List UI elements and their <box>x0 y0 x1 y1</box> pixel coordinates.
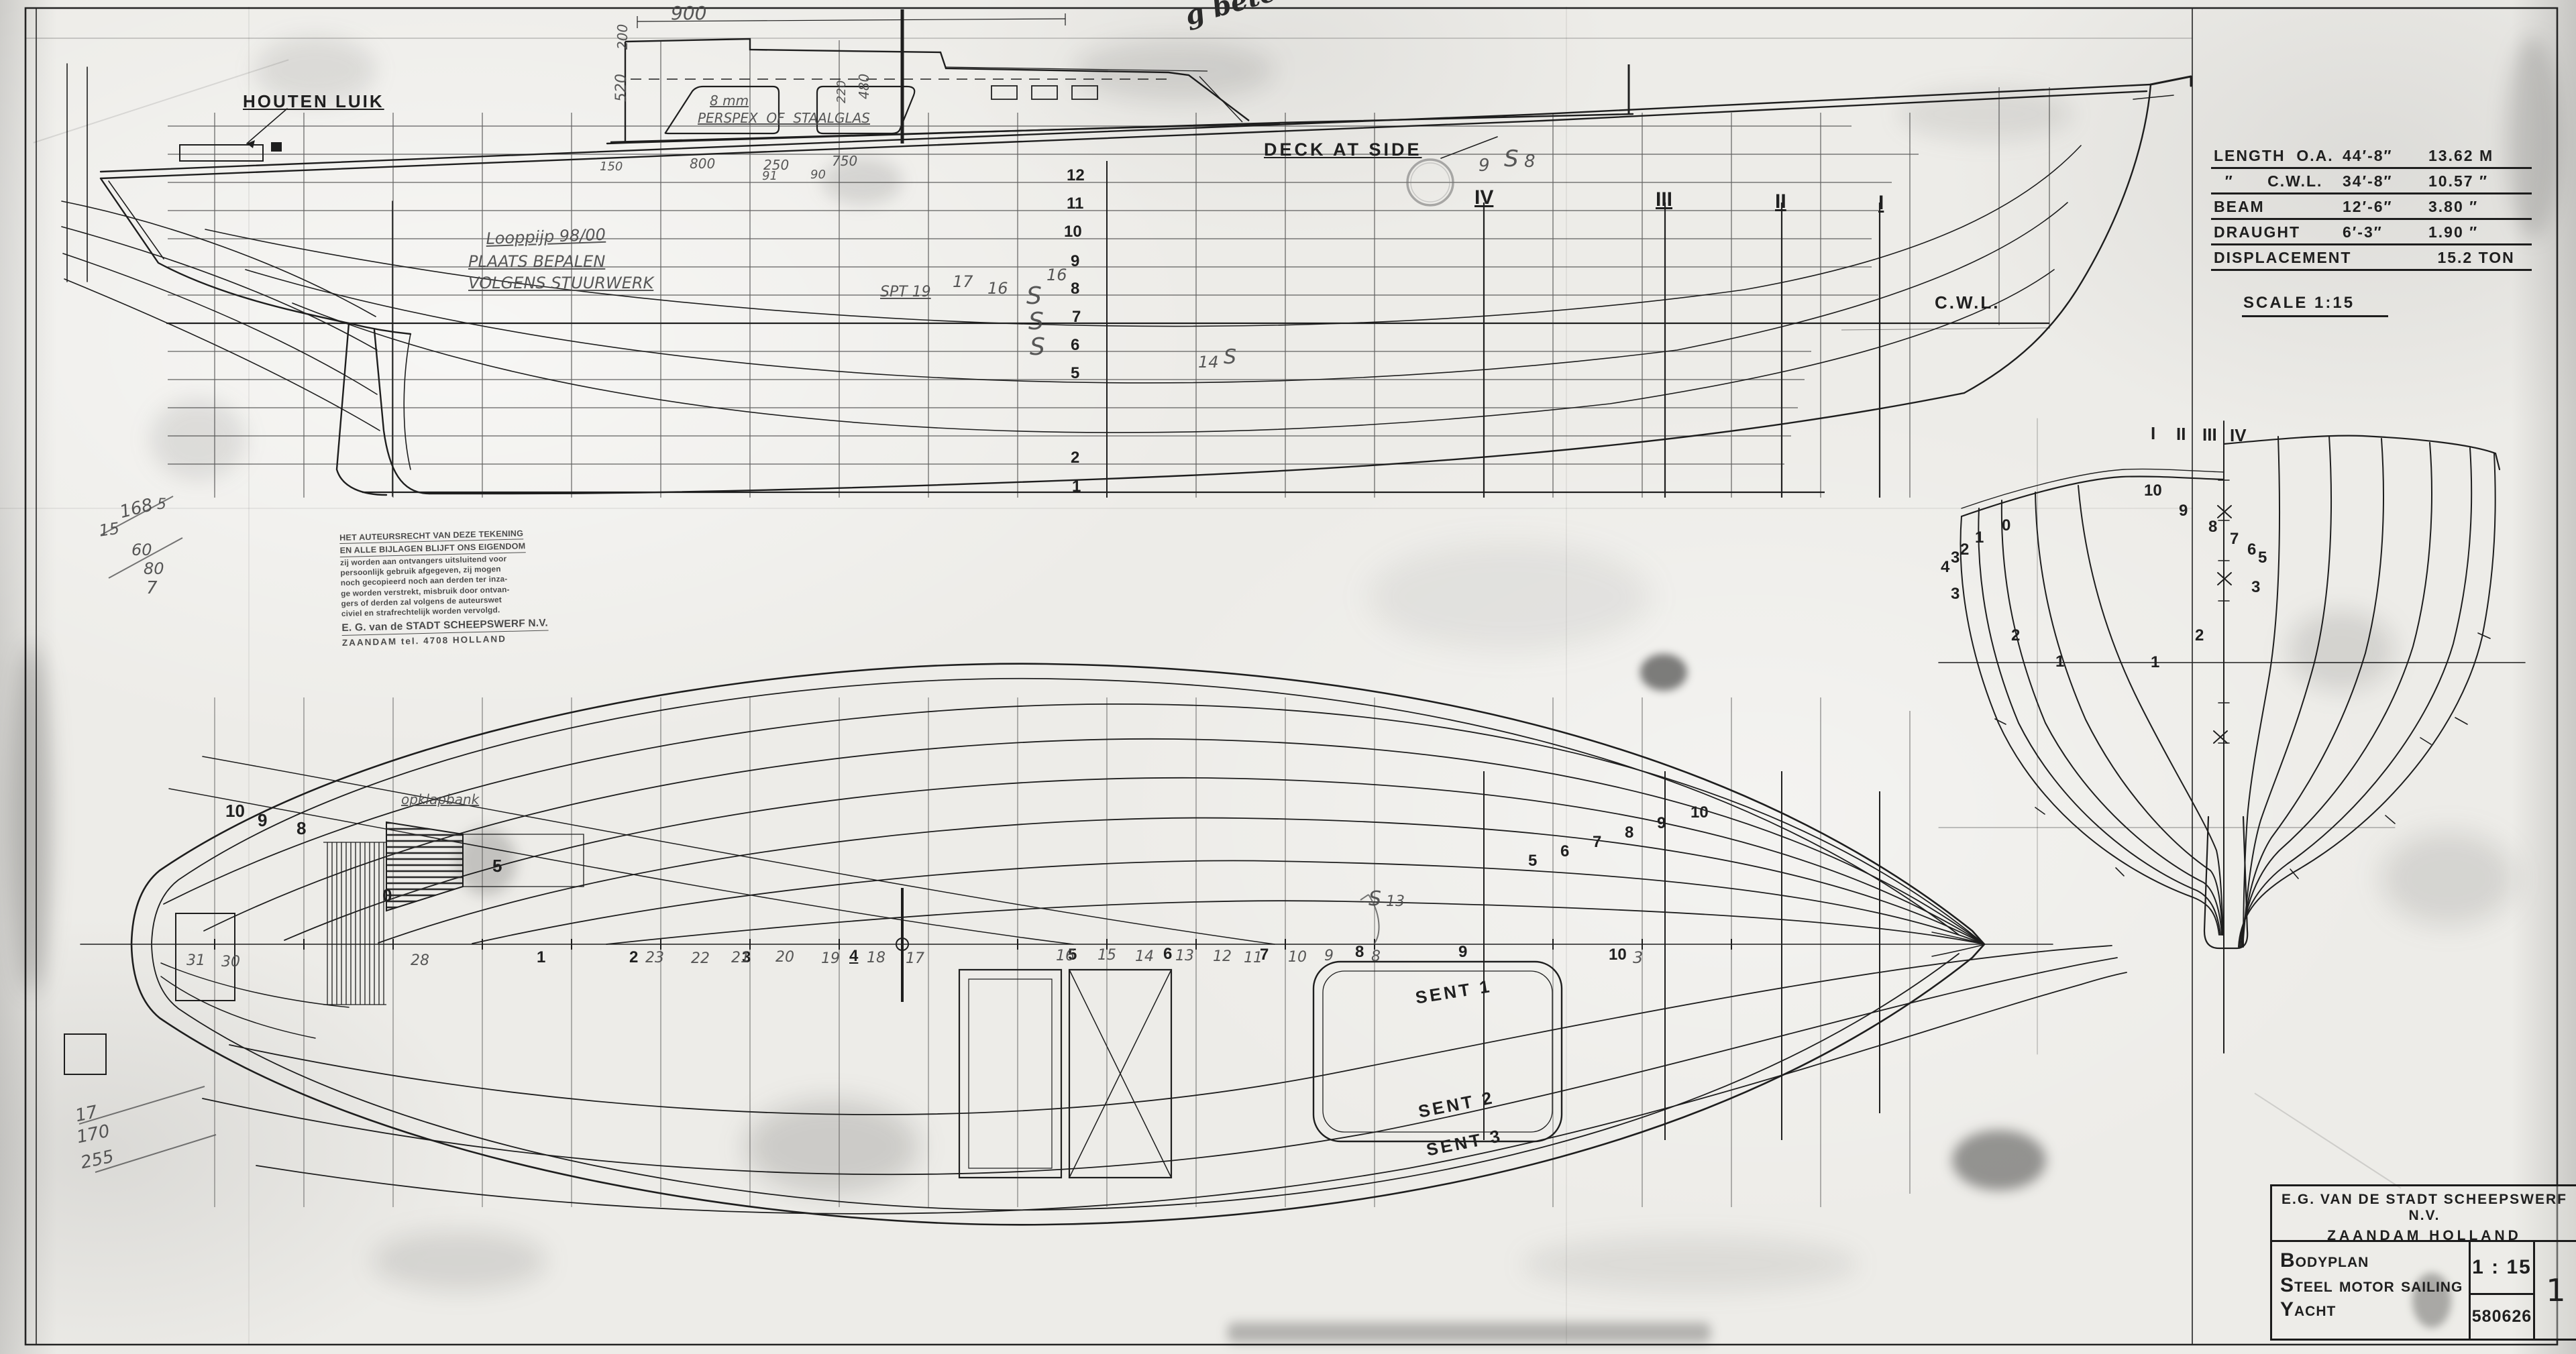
spec-metric: 1.90 ″ <box>2428 223 2529 241</box>
annotation-dim-150: 150 <box>600 161 623 173</box>
annotation-plan-r7: 7 <box>1593 834 1601 850</box>
annotation-station-ii: II <box>1775 192 1786 212</box>
annotation-cl-st9: 9 <box>1458 944 1467 960</box>
annotation-plaats-bepalen: PLAATS BEPALEN <box>468 253 605 270</box>
spec-table: LENGTH O.A. 44′-8″ 13.62 M ″ C.W.L. 34′-… <box>2211 144 2532 317</box>
spec-row-displacement: DISPLACEMENT 15.2 TON <box>2211 245 2532 271</box>
annotation-calc1-7: 7 <box>146 579 158 597</box>
title-block: E.G. VAN DE STADT SCHEEPSWERF N.V. ZAAND… <box>2270 1184 2576 1341</box>
annotation-bp-r6: 6 <box>2247 542 2256 558</box>
annotation-wl-9: 9 <box>1071 253 1079 270</box>
spec-label: DISPLACEMENT <box>2214 249 2351 267</box>
annotation-bp-l4: 4 <box>1941 559 1949 575</box>
annotation-spt19: SPT 19 <box>880 285 931 300</box>
spec-row-beam: BEAM 12′-6″ 3.80 ″ <box>2211 194 2532 220</box>
title-block-mid: 1 : 15 580626 <box>2469 1242 2533 1339</box>
annotation-wl-12: 12 <box>1067 168 1085 184</box>
spec-imperial: 12′-6″ <box>2343 198 2428 216</box>
lines-plan-drawing <box>0 0 2576 1354</box>
annotation-calc2-17: 17 <box>74 1103 99 1125</box>
spec-row-length-oa: LENGTH O.A. 44′-8″ 13.62 M <box>2211 144 2532 169</box>
annotation-fr-15: 15 <box>1097 948 1116 963</box>
annotation-fr-30: 30 <box>221 955 240 970</box>
company-name: E.G. VAN DE STADT SCHEEPSWERF N.V. <box>2272 1192 2576 1224</box>
annotation-wl-11: 11 <box>1067 196 1083 212</box>
annotation-hw-14: 14 <box>1198 354 1219 370</box>
annotation-fr-28: 28 <box>411 954 429 968</box>
profile-hull <box>62 64 2191 496</box>
annotation-bp-l0: 0 <box>2002 518 2010 534</box>
copyright-stamp: HET AUTEURSRECHT VAN DEZE TEKENING EN AL… <box>339 528 507 648</box>
annotation-hw-s4: S <box>1224 347 1236 368</box>
annotation-fr-3: 3 <box>1633 950 1643 966</box>
annotation-plan-wl0: 0 <box>382 887 392 904</box>
spec-imperial: 6′-3″ <box>2343 223 2428 241</box>
annotation-plan-r6: 6 <box>1560 844 1569 860</box>
spec-metric: 15.2 TON <box>2437 249 2538 267</box>
annotation-cl-st10: 10 <box>1609 947 1627 963</box>
annotation-fr-20: 20 <box>775 950 794 965</box>
company-header: E.G. VAN DE STADT SCHEEPSWERF N.V. ZAAND… <box>2272 1186 2576 1242</box>
annotation-cl-st8: 8 <box>1355 944 1364 960</box>
annotation-plan-wl9: 9 <box>258 811 267 829</box>
annotation-wl-5: 5 <box>1071 365 1079 382</box>
annotation-opklapbank: opklapbank <box>401 793 479 806</box>
annotation-wl-8: 8 <box>1071 281 1079 297</box>
annotation-looppijp: Looppijp 98/00 <box>486 227 606 247</box>
annotation-bp-rr2: 2 <box>2195 628 2204 644</box>
annotation-plan-wl5: 5 <box>492 857 502 875</box>
annotation-wl-6: 6 <box>1071 337 1079 353</box>
annotation-bp-iii: III <box>2202 426 2217 443</box>
annotation-calc1-15: 15 <box>98 520 121 539</box>
annotation-dim-90: 90 <box>810 169 826 181</box>
annotation-dim-200: 200 <box>616 24 629 50</box>
drawing-title-line1: Bodyplan <box>2280 1249 2465 1274</box>
spec-label: ″ C.W.L. <box>2214 172 2343 190</box>
annotation-perspex: PERSPEX OF STAALGLAS <box>698 111 870 125</box>
annotation-dim-480: 480 <box>857 74 871 99</box>
annotation-hw-s2: S <box>1028 310 1044 334</box>
annotation-houten-luik: HOUTEN LUIK <box>243 93 384 110</box>
drawing-scale: 1 : 15 <box>2471 1242 2533 1295</box>
spec-label: BEAM <box>2214 198 2343 216</box>
annotation-calc1-80: 80 <box>144 561 164 577</box>
annotation-hw-9: 9 <box>1479 157 1490 174</box>
annotation-fr-18: 18 <box>867 951 885 966</box>
annotation-cl-st2: 2 <box>629 950 638 966</box>
profile-grid-heavy <box>166 9 2049 498</box>
annotation-hw-16a: 16 <box>987 280 1008 296</box>
annotation-bp-rr3: 3 <box>2251 579 2260 596</box>
annotation-fr-14: 14 <box>1135 950 1154 964</box>
annotation-plan-wl10: 10 <box>225 802 245 820</box>
spec-metric: 3.80 ″ <box>2428 198 2529 216</box>
annotation-fr-9: 9 <box>1324 949 1334 964</box>
annotation-plan-r9: 9 <box>1657 815 1666 832</box>
annotation-fr-16: 16 <box>1056 949 1075 964</box>
spec-row-draught: DRAUGHT 6′-3″ 1.90 ″ <box>2211 220 2532 245</box>
annotation-bp-l2: 2 <box>1960 542 1969 558</box>
annotation-hw-s3: S <box>1030 335 1045 359</box>
annotation-bp-r5: 5 <box>2258 550 2267 566</box>
annotation-bp-iv: IV <box>2230 427 2247 444</box>
annotation-dim-520: 520 <box>614 74 629 102</box>
annotation-fr-17: 17 <box>906 952 924 966</box>
annotation-wl-1: 1 <box>1072 479 1081 495</box>
drawing-title-line2: Steel motor sailing <box>2280 1274 2465 1298</box>
annotation-cwl: C.W.L. <box>1935 294 2000 311</box>
annotation-volgens-stuurwerk: VOLGENS STUURWERK <box>468 275 653 291</box>
annotation-fr-31: 31 <box>186 954 205 968</box>
annotation-station-iv: IV <box>1474 188 1493 208</box>
annotation-bp-l1: 1 <box>1975 530 1984 546</box>
drawing-title-line3: Yacht <box>2280 1298 2465 1322</box>
annotation-bp-r10: 10 <box>2144 483 2162 499</box>
annotation-bp-ii: II <box>2176 425 2186 443</box>
annotation-bp-r8: 8 <box>2208 519 2217 535</box>
annotation-fr-11: 11 <box>1244 951 1263 966</box>
annotation-plan-r10: 10 <box>1690 805 1709 821</box>
annotation-fr-22: 22 <box>691 952 710 966</box>
annotation-bp-rr1: 1 <box>2151 655 2159 671</box>
annotation-cl-st1: 1 <box>537 950 545 966</box>
annotation-fr-19: 19 <box>821 952 840 966</box>
annotation-station-i: I <box>1878 193 1884 213</box>
annotation-hw-16b: 16 <box>1046 267 1067 283</box>
annotation-fr-13: 13 <box>1175 949 1194 964</box>
spec-label: DRAUGHT <box>2214 223 2343 241</box>
spec-imperial: 44′-8″ <box>2343 147 2428 165</box>
annotation-wl-2: 2 <box>1071 450 1079 466</box>
annotation-fr-12: 12 <box>1213 950 1232 964</box>
spec-row-length-cwl: ″ C.W.L. 34′-8″ 10.57 ″ <box>2211 169 2532 194</box>
annotation-fr-8: 8 <box>1371 950 1381 964</box>
annotation-deck-at-side: DECK AT SIDE <box>1264 141 1422 159</box>
pencil-strokes <box>79 496 1379 1172</box>
annotation-calc1-5: 5 <box>157 498 166 512</box>
annotation-wl-10: 10 <box>1064 224 1082 240</box>
plan-structures <box>64 822 1731 1178</box>
body-plan <box>1939 418 2525 1054</box>
spec-metric: 13.62 M <box>2428 147 2529 165</box>
annotation-dim-750: 750 <box>832 154 857 168</box>
annotation-dim-91: 91 <box>762 170 777 182</box>
title-block-lower: Bodyplan Steel motor sailing Yacht 1 : 1… <box>2272 1242 2576 1339</box>
annotation-bp-ll1: 1 <box>2055 654 2064 670</box>
annotation-bp-ll2: 2 <box>2011 628 2020 644</box>
annotation-bp-r7: 7 <box>2230 531 2239 547</box>
annotation-bp-i: I <box>2151 425 2155 442</box>
annotation-dim-900: 900 <box>671 4 706 23</box>
annotation-wl-7: 7 <box>1072 309 1081 325</box>
annotation-bp-l3: 3 <box>1951 550 1960 566</box>
annotation-hw-s1: S <box>1026 284 1042 308</box>
drawing-number: 580626 <box>2471 1295 2533 1339</box>
spec-imperial: 34′-8″ <box>2343 172 2428 190</box>
annotation-hw-8: 8 <box>1524 153 1536 170</box>
annotation-dim-800: 800 <box>690 157 715 170</box>
spec-metric: 10.57 ″ <box>2428 172 2529 190</box>
annotation-plan-wl8: 8 <box>297 820 306 837</box>
annotation-plan-r8: 8 <box>1625 825 1633 841</box>
annotation-bp-ll3: 3 <box>1951 586 1960 602</box>
annotation-station-iii: III <box>1656 190 1672 210</box>
profile-grid <box>168 40 2049 498</box>
spec-label: LENGTH O.A. <box>2214 147 2343 165</box>
annotation-hw-17: 17 <box>953 274 973 290</box>
annotation-dim-8mm: 8 mm <box>710 94 749 107</box>
annotation-fr-10: 10 <box>1288 950 1307 965</box>
plan-view-curves <box>80 664 2127 1225</box>
annotation-plan-r5: 5 <box>1528 853 1537 869</box>
drawing-title: Bodyplan Steel motor sailing Yacht <box>2272 1242 2469 1339</box>
sheet-border <box>25 8 2557 1345</box>
annotation-bp-r9: 9 <box>2179 503 2188 519</box>
annotation-hw-s13-s: S <box>1368 889 1381 909</box>
scale-note: SCALE 1:15 <box>2242 294 2388 317</box>
annotation-fr-21: 21 <box>731 951 750 966</box>
annotation-hw-s5: S <box>1504 148 1519 170</box>
blueprint-sheet: LENGTH O.A. 44′-8″ 13.62 M ″ C.W.L. 34′-… <box>0 0 2576 1354</box>
annotation-fr-23: 23 <box>645 951 664 966</box>
annotation-cl-st4: 4 <box>849 948 858 964</box>
annotation-hw-s13: 13 <box>1386 895 1405 909</box>
annotation-calc1-60: 60 <box>131 542 152 558</box>
sheet-number: 1 <box>2533 1242 2576 1339</box>
annotation-cl-st6: 6 <box>1163 946 1172 962</box>
annotation-dim-220: 220 <box>836 80 848 103</box>
